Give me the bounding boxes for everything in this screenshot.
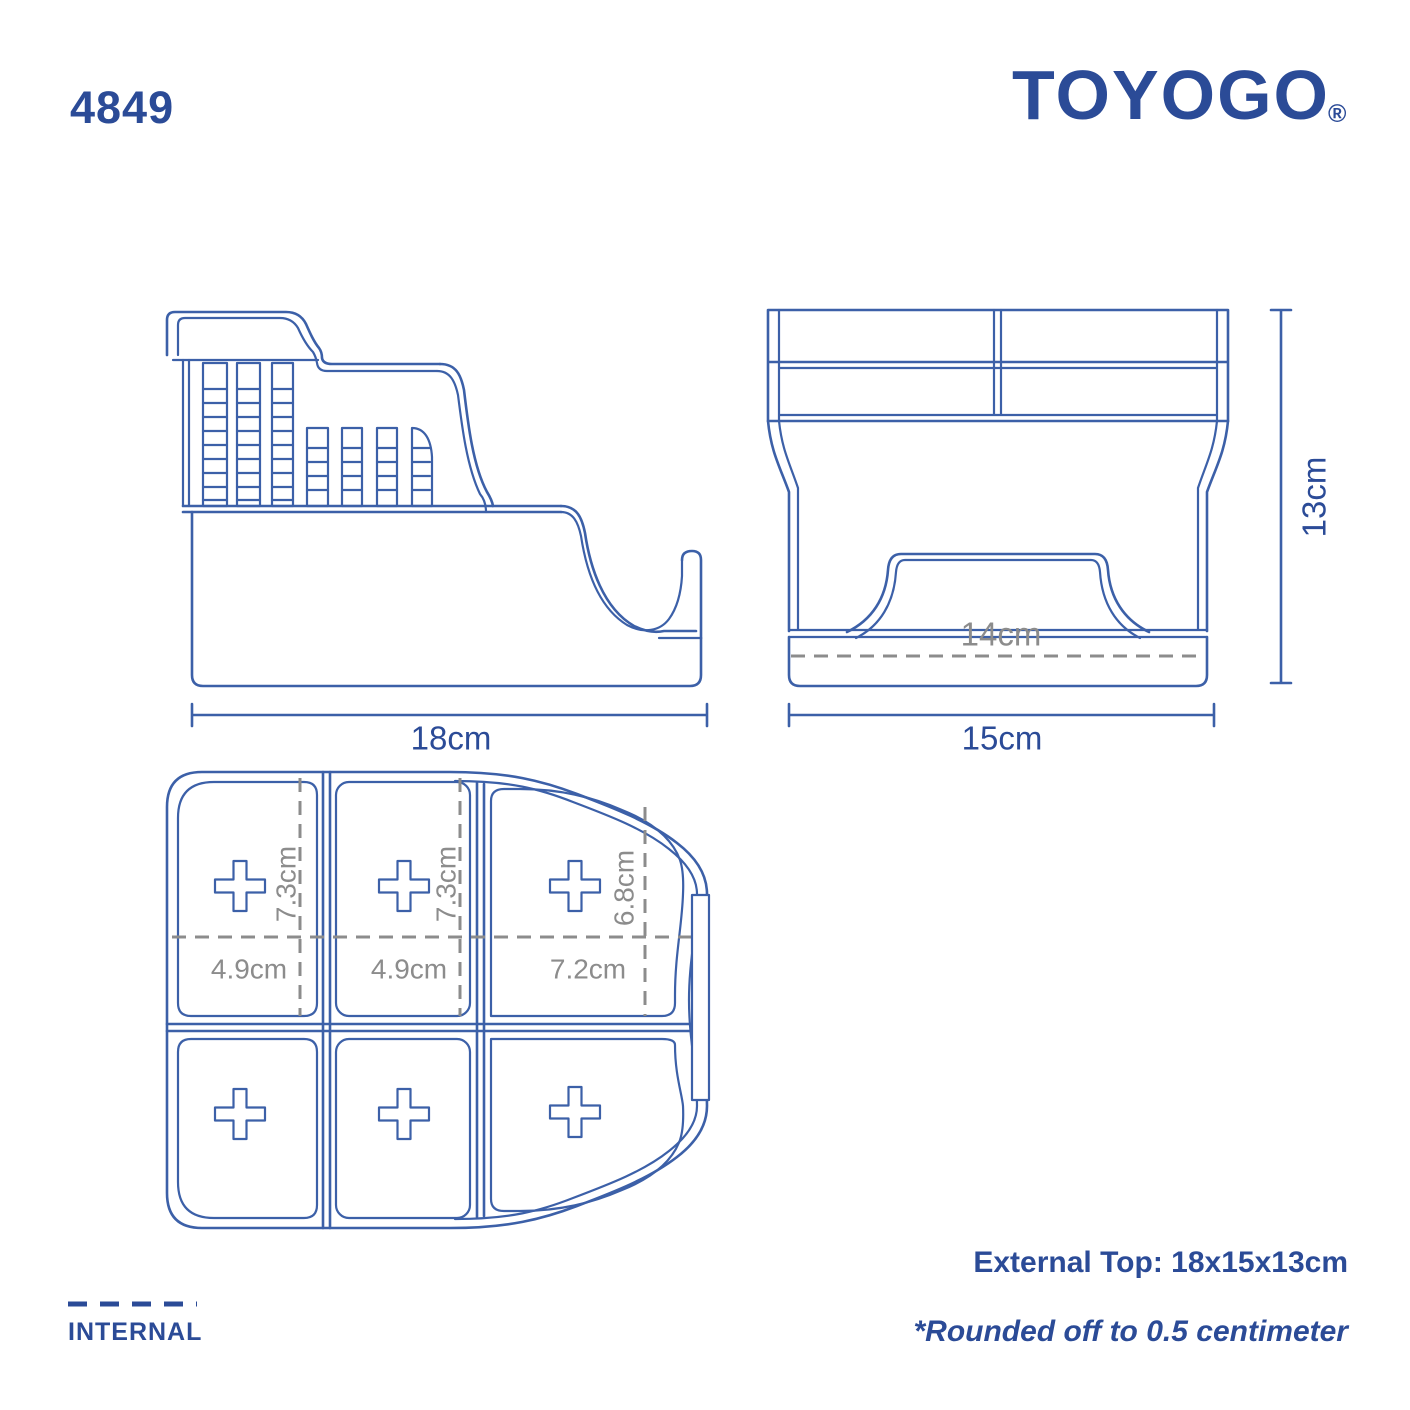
side-view-step-outline (440, 364, 493, 506)
tall-slat (203, 363, 227, 506)
tall-slat (272, 363, 293, 506)
short-slat (342, 428, 362, 506)
compartment-depth-label: 6.8cm (608, 850, 639, 926)
side-view-short-rack (307, 428, 432, 506)
short-slat-round-top (412, 428, 432, 506)
tall-slat-rungs (203, 389, 293, 500)
front-height-label: 13cm (1296, 457, 1333, 538)
drawing-sheet: 4849 TOYOGO ® (0, 0, 1410, 1410)
product-code: 4849 (70, 82, 174, 133)
dimension-line (1271, 310, 1291, 683)
side-view-trough-outline (561, 506, 696, 632)
top-view-side-clip (692, 895, 709, 1100)
grid-outline (768, 310, 1228, 421)
front-view-slot-grid (768, 310, 1228, 421)
top-view-column-separators (323, 772, 484, 1228)
compartment-depth-label: 7.3cm (430, 846, 461, 922)
plus-mark-icon (215, 1089, 265, 1139)
notes: External Top: 18x15x13cm *Rounded off to… (913, 1246, 1350, 1348)
rounding-note: *Rounded off to 0.5 centimeter (913, 1315, 1350, 1348)
front-view-width-dimension: 15cm (789, 704, 1214, 757)
plus-mark-icon (215, 861, 265, 911)
plus-mark-icon (379, 861, 429, 911)
internal-legend: INTERNAL (68, 1304, 202, 1346)
side-width-label: 18cm (411, 720, 492, 757)
compartment-cell (491, 1039, 683, 1211)
short-slat (307, 428, 328, 506)
compartment-width-label: 7.2cm (550, 953, 626, 984)
front-view: 14cm (768, 310, 1228, 686)
internal-legend-label: INTERNAL (68, 1318, 202, 1346)
compartment-depth-label: 7.3cm (270, 846, 301, 922)
top-view: 7.3cm 7.3cm 6.8cm 4.9cm 4.9cm 7.2cm (167, 772, 709, 1228)
compartment-width-label: 4.9cm (211, 953, 287, 984)
side-view-step-inner-line (437, 371, 486, 512)
side-view-rack-wall (183, 360, 189, 506)
registered-mark-icon: ® (1328, 100, 1347, 128)
front-width-label: 15cm (962, 720, 1043, 757)
top-view-outline (167, 772, 707, 1228)
side-view (167, 312, 701, 686)
plus-mark-icon (379, 1089, 429, 1139)
plus-mark-icon (550, 861, 600, 911)
tall-slat (237, 363, 260, 506)
grid-inner-lines (779, 310, 1217, 421)
front-internal-width-label: 14cm (961, 616, 1042, 653)
short-slat (377, 428, 397, 506)
technical-drawing-canvas: 4849 TOYOGO ® (0, 0, 1410, 1410)
brand-logo: TOYOGO (1012, 56, 1330, 134)
front-view-height-dimension: 13cm (1271, 310, 1333, 683)
external-dimensions-note: External Top: 18x15x13cm (973, 1246, 1348, 1279)
side-view-width-dimension: 18cm (192, 704, 707, 757)
header: 4849 TOYOGO ® (70, 56, 1347, 134)
side-view-base-outline (192, 512, 701, 686)
top-view-row-separator (167, 1024, 700, 1031)
side-view-trough-inner-line (561, 512, 682, 630)
compartment-width-label: 4.9cm (371, 953, 447, 984)
side-view-tall-rack (203, 363, 293, 506)
plus-mark-icon (550, 1087, 600, 1137)
side-view-spout-wall (682, 551, 701, 638)
